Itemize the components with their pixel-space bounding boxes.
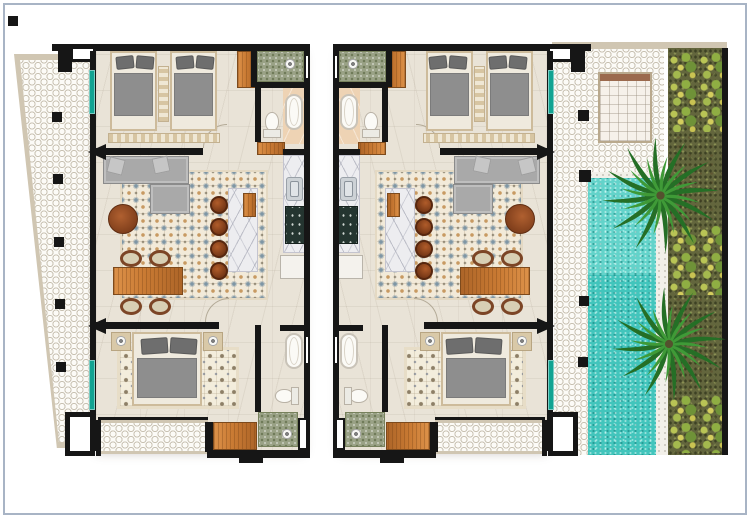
duvet [137, 358, 196, 398]
wall-bathroom [255, 87, 261, 142]
bedside-runner-rug [474, 66, 485, 122]
wall-bathroom2 [255, 325, 261, 412]
wall-corner [571, 44, 585, 72]
duvet [446, 358, 505, 398]
pillow [488, 55, 507, 70]
toilet [263, 112, 281, 138]
window [304, 335, 310, 365]
window [333, 54, 339, 80]
pillow [140, 337, 168, 355]
pillow [448, 55, 467, 70]
dining-chair [501, 250, 523, 267]
table-lamp [424, 335, 436, 347]
entry-step [239, 451, 263, 463]
twin-bed [170, 51, 217, 131]
twin-bed [486, 51, 533, 131]
wall-balcony [542, 420, 547, 456]
palm-tree [608, 283, 730, 405]
wall-closet [205, 422, 213, 452]
corner-column [8, 16, 18, 26]
window [298, 418, 308, 450]
unit-left [52, 44, 310, 458]
wall-bathroom2 [280, 325, 310, 331]
duvet [174, 73, 213, 116]
entry-arrow [88, 318, 106, 334]
pillow [508, 55, 527, 70]
sofa-chaise [453, 184, 493, 214]
toilet-tank [263, 129, 281, 138]
toilet-bowl [350, 389, 368, 403]
toilet [275, 387, 299, 405]
duvet [430, 73, 469, 116]
dining-chair [149, 298, 171, 315]
wall-kitchen-divider [283, 149, 310, 155]
wall-balcony [96, 420, 101, 456]
balcony-door-track [98, 417, 208, 420]
pillow [445, 337, 473, 355]
entry-arrow [537, 144, 555, 160]
toilet [362, 112, 380, 138]
wall-bathroom [255, 82, 310, 88]
shower-head [350, 428, 362, 440]
window [335, 418, 345, 450]
bathtub [340, 333, 358, 369]
wardrobe [213, 422, 257, 450]
bathtub [285, 94, 303, 130]
stove [337, 206, 358, 244]
sliding-door [89, 360, 95, 410]
dining-chair [120, 250, 142, 267]
dining-chair [501, 298, 523, 315]
throw-pillow [152, 156, 171, 175]
cutting-board [243, 193, 256, 217]
entry-step [380, 451, 404, 463]
wall-bathroom [333, 82, 388, 88]
wall-bathroom2 [382, 325, 388, 412]
bathtub [285, 333, 303, 369]
king-bed [132, 332, 202, 406]
bathroom-shelf [358, 142, 386, 155]
kitchen-sink [340, 177, 357, 201]
sofa-chaise [150, 184, 190, 214]
shower [257, 51, 304, 82]
bed-foot-runner-rug [423, 133, 535, 143]
sliding-door [548, 70, 554, 114]
entry-vestibule [65, 412, 95, 456]
wall-kitchen-divider [333, 149, 360, 155]
kitchen-sink [286, 177, 303, 201]
bar-stool [415, 262, 433, 280]
shower-head [284, 58, 296, 70]
duvet [114, 73, 153, 116]
twin-bed [110, 51, 157, 131]
toilet-tank [344, 387, 352, 405]
bathroom-shelf [257, 142, 285, 155]
pillow [175, 55, 194, 70]
sliding-door [548, 360, 554, 410]
dining-table [113, 267, 183, 295]
dining-chair [472, 250, 494, 267]
wall-master-divider [424, 322, 550, 329]
bar-stool [210, 196, 228, 214]
pillow [195, 55, 214, 70]
duvet [490, 73, 529, 116]
pillow [169, 337, 197, 355]
dining-chair [120, 298, 142, 315]
wall-bathroom2 [333, 325, 363, 331]
toilet [344, 387, 368, 405]
toilet-tank [291, 387, 299, 405]
bed-foot-runner-rug [108, 133, 220, 143]
balcony [98, 420, 208, 454]
shower [339, 51, 386, 82]
shower-head [281, 428, 293, 440]
wall-bathroom [382, 87, 388, 142]
shrubs [668, 52, 722, 132]
pillow [474, 337, 502, 355]
entry-vestibule [548, 412, 578, 456]
dining-chair [149, 250, 171, 267]
bar-stool [415, 240, 433, 258]
floor-plan [0, 0, 750, 518]
toilet-tank [362, 129, 380, 138]
bar-stool [415, 218, 433, 236]
pillow [428, 55, 447, 70]
bedside-runner-rug [158, 66, 169, 122]
entry-arrow [88, 144, 106, 160]
sliding-door [89, 70, 95, 114]
shower [258, 412, 298, 447]
bar-stool [415, 196, 433, 214]
unit-right [333, 44, 591, 458]
bathtub [340, 94, 358, 130]
window [333, 335, 339, 365]
bar-stool [210, 240, 228, 258]
pillow [135, 55, 154, 70]
wall-closet [430, 422, 438, 452]
dining-table [460, 267, 530, 295]
wall-right [333, 51, 339, 451]
twin-bed [426, 51, 473, 131]
wall-bedroom-divider [95, 148, 203, 155]
coffee-table [505, 204, 535, 234]
table-lamp [207, 335, 219, 347]
wall-right [304, 51, 310, 451]
dining-chair [472, 298, 494, 315]
cutting-board [387, 193, 400, 217]
coffee-table [108, 204, 138, 234]
floor-plan-page [0, 0, 750, 518]
pillow [115, 55, 134, 70]
wardrobe [386, 422, 430, 450]
balcony-door-track [435, 417, 545, 420]
wall-bedroom-divider [440, 148, 548, 155]
table-lamp [516, 335, 528, 347]
palm-tree [598, 133, 723, 258]
kitchen-cabinet [335, 255, 363, 279]
king-bed [441, 332, 511, 406]
window [304, 54, 310, 80]
entry-arrow [537, 318, 555, 334]
wall-master-divider [93, 322, 219, 329]
bar-stool [210, 218, 228, 236]
shower-head [347, 58, 359, 70]
throw-pillow [473, 156, 492, 175]
balcony [435, 420, 545, 454]
stove [285, 206, 306, 244]
daybed-headrest [600, 74, 650, 81]
table-lamp [115, 335, 127, 347]
bar-stool [210, 262, 228, 280]
